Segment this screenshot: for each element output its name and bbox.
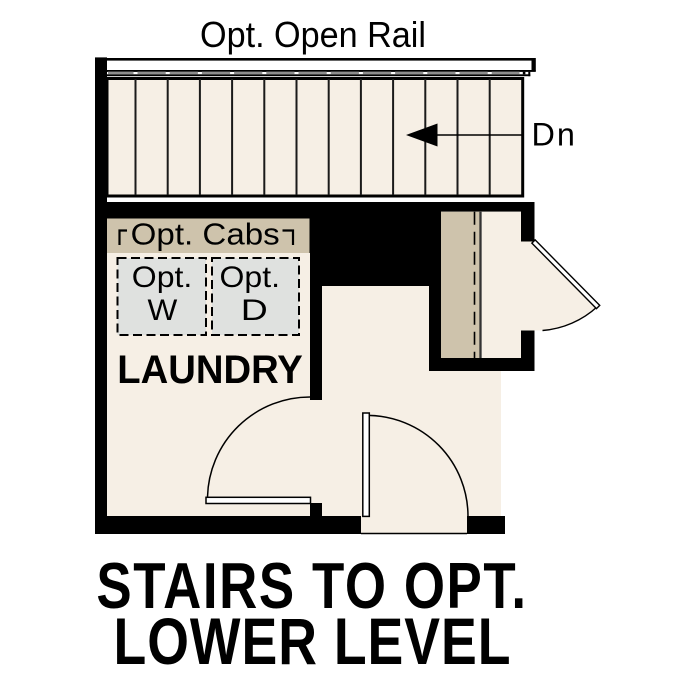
svg-text:Dn: Dn: [532, 117, 577, 153]
svg-text:W: W: [148, 294, 179, 327]
svg-text:LAUNDRY: LAUNDRY: [117, 348, 302, 392]
svg-text:Opt. Open Rail: Opt. Open Rail: [200, 14, 426, 55]
svg-text:D: D: [241, 294, 268, 327]
svg-text:LOWER LEVEL: LOWER LEVEL: [113, 605, 511, 678]
svg-text:Opt.: Opt.: [132, 261, 193, 294]
svg-text:Opt.: Opt.: [220, 261, 281, 294]
svg-text:Opt. Cabs: Opt. Cabs: [131, 216, 280, 251]
